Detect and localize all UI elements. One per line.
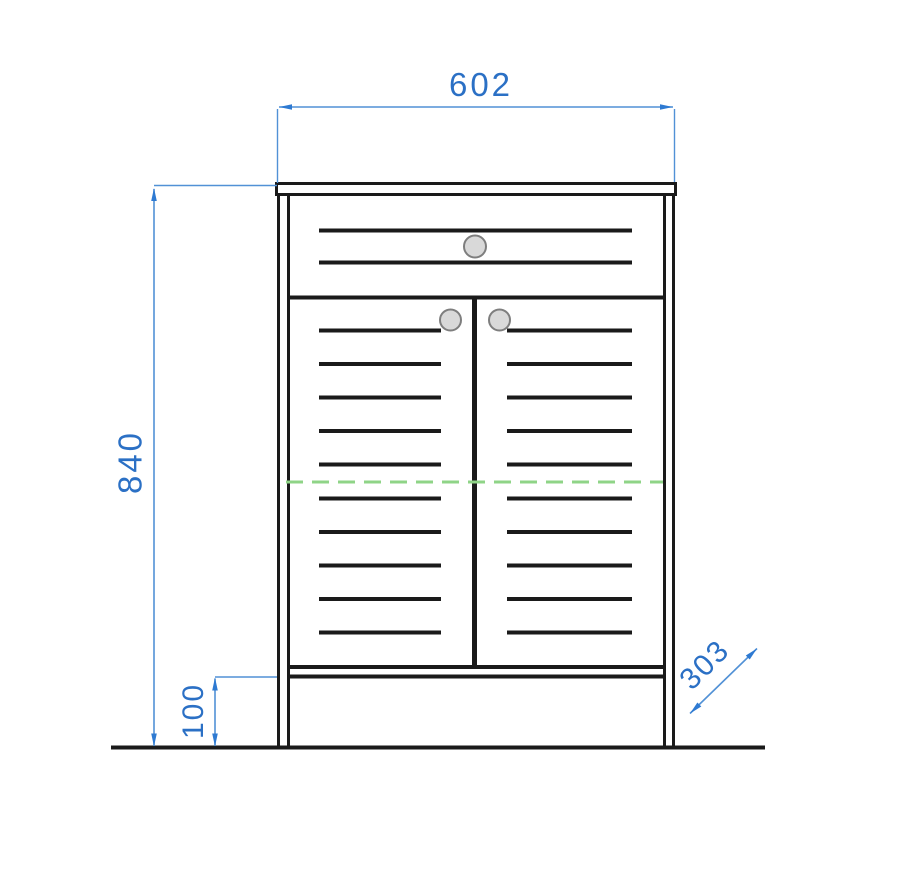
left-door-knob (440, 310, 461, 331)
dimension-height: 840 (112, 186, 277, 747)
dimension-width-label: 602 (449, 66, 513, 103)
arrow-up-icon (151, 188, 157, 201)
arrow-down-icon (151, 734, 157, 747)
dimension-width: 602 (278, 66, 675, 183)
dimension-depth: 303 (673, 633, 757, 713)
arrow-up-icon (212, 678, 218, 691)
countertop (277, 184, 676, 195)
dimension-plinth: 100 (177, 677, 277, 747)
cabinet-drawing: 602 840 100 303 (0, 0, 900, 890)
right-door-knob (489, 310, 510, 331)
dimension-depth-label: 303 (673, 633, 736, 696)
dimension-height-label: 840 (112, 430, 149, 494)
dimension-plinth-label: 100 (177, 683, 210, 739)
arrow-right-icon (660, 104, 673, 110)
arrow-down-icon (212, 734, 218, 747)
drawer-knob (464, 236, 486, 258)
arrow-left-icon (279, 104, 292, 110)
technical-drawing-canvas: 602 840 100 303 (0, 0, 900, 890)
